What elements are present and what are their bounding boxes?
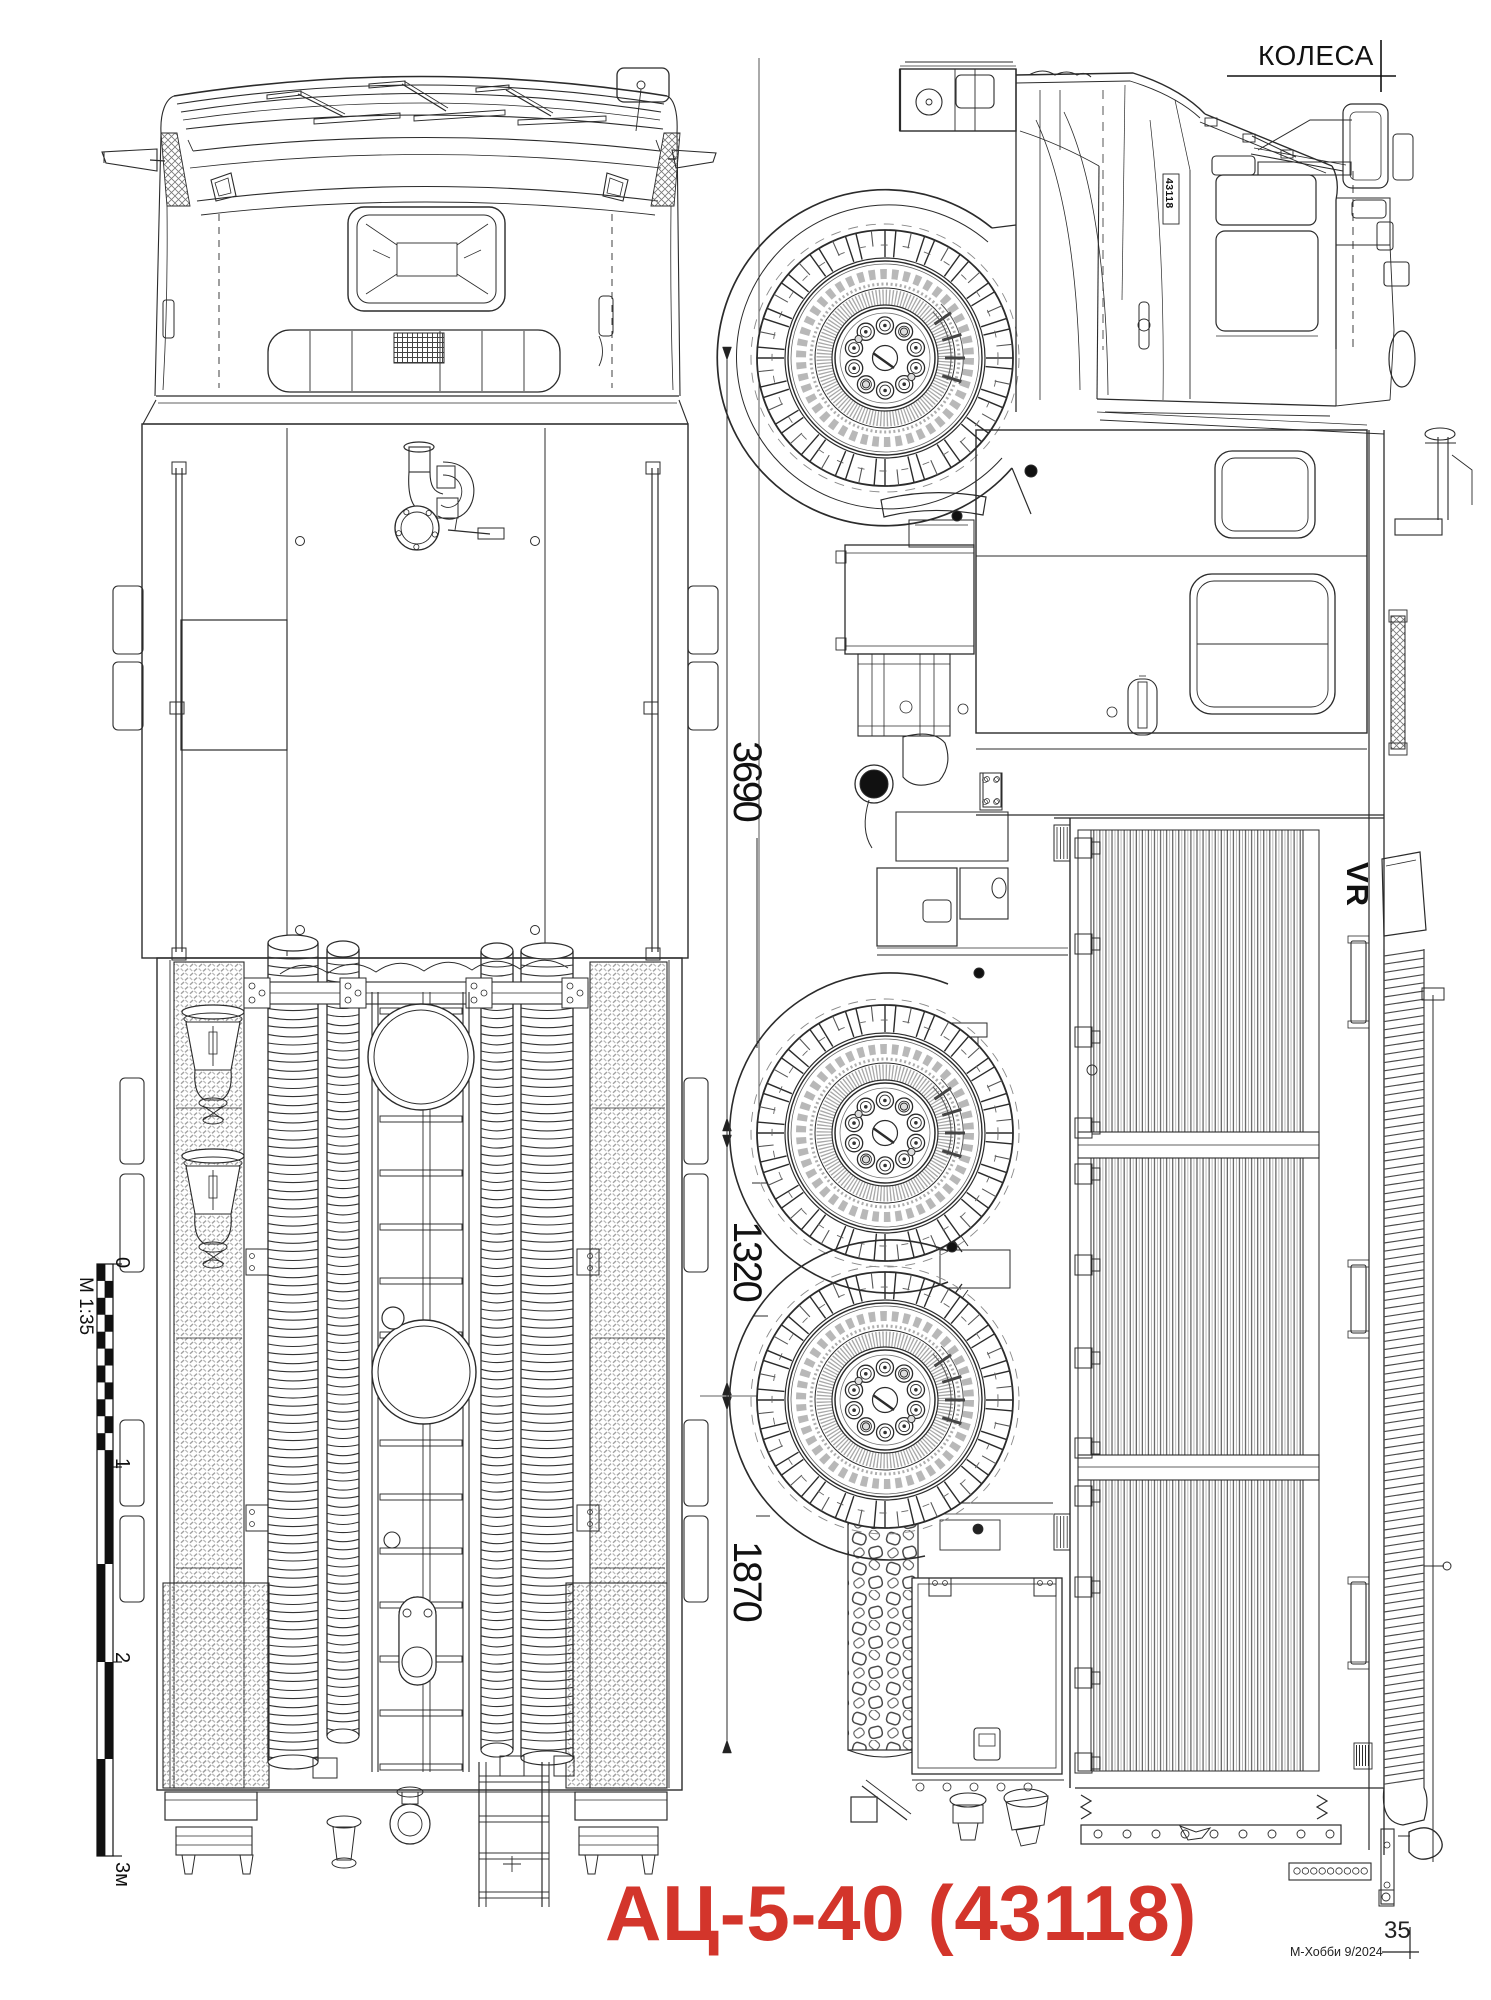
svg-text:КОЛЕСА: КОЛЕСА bbox=[1258, 40, 1374, 71]
svg-text:1320: 1320 bbox=[725, 1221, 769, 1302]
svg-text:М 1:35: М 1:35 bbox=[75, 1277, 96, 1335]
svg-text:1870: 1870 bbox=[725, 1541, 769, 1622]
svg-text:VR: VR bbox=[1340, 862, 1375, 907]
svg-text:1: 1 bbox=[111, 1458, 133, 1469]
svg-text:0: 0 bbox=[111, 1257, 133, 1268]
svg-text:43118: 43118 bbox=[1163, 178, 1175, 209]
svg-text:М-Хобби 9/2024: М-Хобби 9/2024 bbox=[1290, 1945, 1383, 1959]
svg-text:3м: 3м bbox=[111, 1862, 133, 1887]
svg-text:АЦ-5-40 (43118): АЦ-5-40 (43118) bbox=[605, 1869, 1197, 1957]
svg-text:3690: 3690 bbox=[725, 741, 769, 822]
svg-text:35: 35 bbox=[1384, 1917, 1411, 1944]
svg-text:2: 2 bbox=[111, 1652, 133, 1663]
